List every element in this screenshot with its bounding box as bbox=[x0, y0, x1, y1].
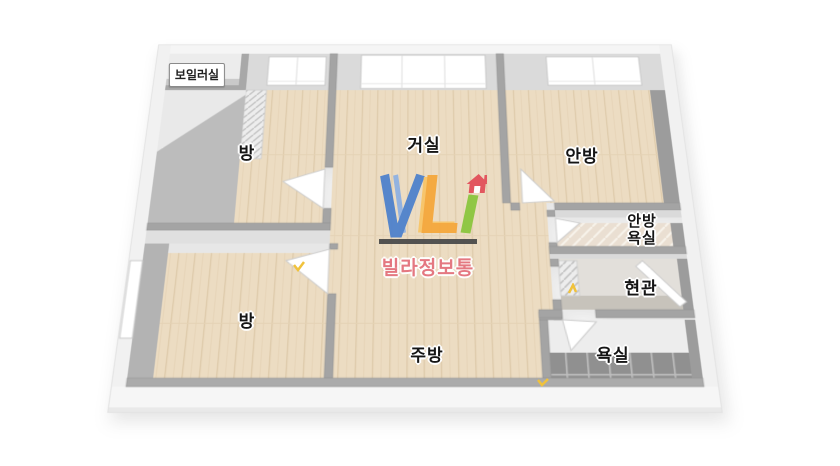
room-label-entrance: 현관 bbox=[624, 280, 657, 298]
logo-underline-bar bbox=[379, 239, 477, 244]
watermark-logo-letters bbox=[369, 171, 487, 247]
room-label-bedroom-top-left: 방 bbox=[239, 145, 256, 163]
room-label-line2: 욕실 bbox=[627, 230, 657, 247]
room-label-bedroom-bottom-left: 방 bbox=[239, 313, 256, 331]
door-direction-marker bbox=[566, 283, 580, 295]
room-label-line1: 안방 bbox=[627, 213, 657, 230]
windows bbox=[267, 55, 643, 88]
floor-corridor bbox=[503, 203, 548, 227]
watermark-logo-subtitle: 빌라정보통 bbox=[369, 253, 487, 280]
room-label-living-room: 거실 bbox=[407, 137, 440, 155]
window-living-room bbox=[361, 55, 487, 88]
logo-letter-i bbox=[465, 195, 473, 233]
room-label-kitchen: 주방 bbox=[410, 347, 443, 365]
door-direction-marker bbox=[536, 376, 550, 388]
logo-house-icon bbox=[466, 174, 487, 193]
room-label-bathroom: 욕실 bbox=[596, 347, 629, 365]
window-bedroom-top bbox=[267, 57, 326, 85]
logo-letter-l bbox=[427, 175, 463, 228]
window-master-bedroom bbox=[546, 57, 642, 85]
door-direction-marker bbox=[292, 260, 306, 272]
room-label-master-bedroom: 안방 bbox=[565, 148, 598, 166]
room-label-boiler-room: 보일러실 bbox=[169, 63, 225, 87]
floor-plan-canvas: 보일러실 방 거실 안방 안방 욕실 현관 욕실 방 주방 bbox=[0, 0, 840, 466]
room-label-master-bathroom: 안방 욕실 bbox=[627, 213, 657, 247]
watermark-logo: 빌라정보통 bbox=[369, 171, 487, 280]
